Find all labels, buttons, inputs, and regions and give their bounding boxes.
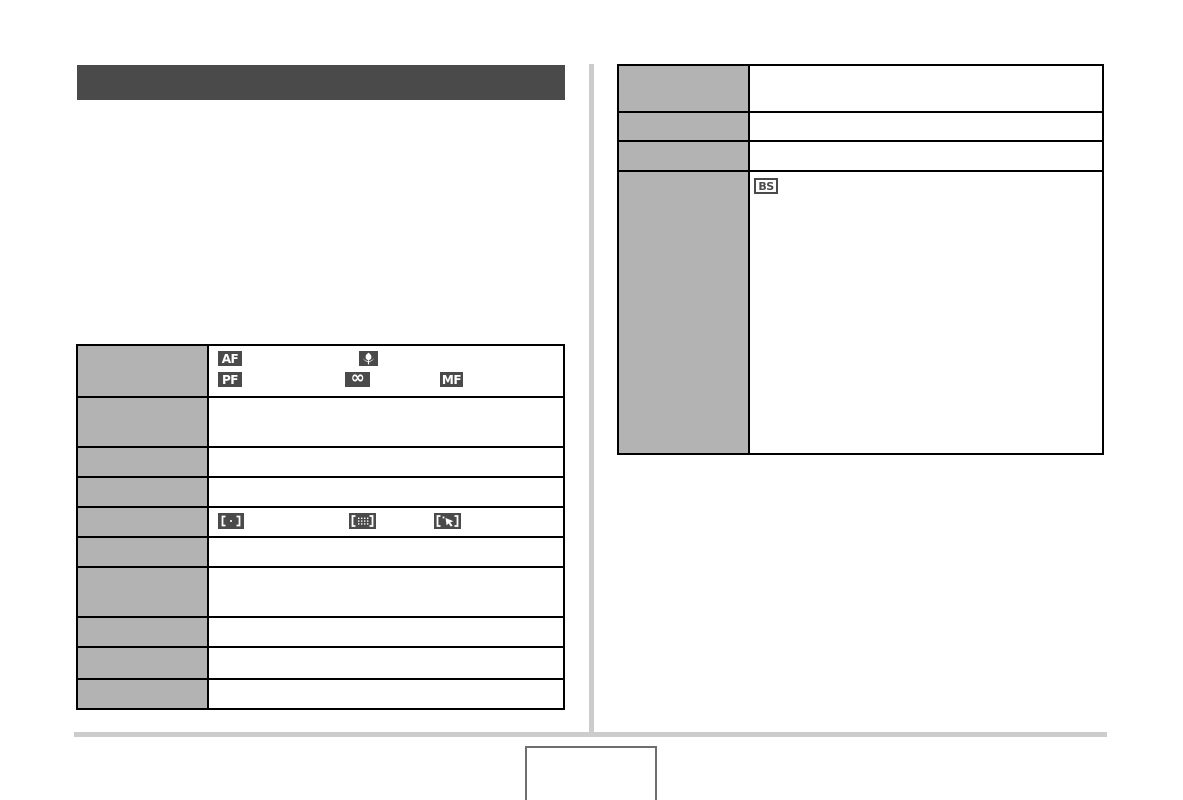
table-row: [619, 66, 1102, 113]
row-label-cell: [78, 618, 209, 646]
row-content-cell: [209, 618, 563, 646]
table-row: [78, 618, 563, 648]
row-label-cell: [78, 568, 209, 616]
table-row: [78, 478, 563, 508]
table-row: [78, 568, 563, 618]
row-label-cell: [619, 113, 750, 140]
row-label-cell: [78, 398, 209, 446]
row-label-cell: [78, 648, 209, 678]
row-label-cell: [619, 172, 750, 453]
row-label-cell: [78, 448, 209, 476]
manual-page: AF PF ∞ MF: [0, 0, 1183, 800]
row-content-cell: [750, 142, 1102, 170]
manual-focus-icon: MF: [440, 372, 463, 387]
footer-rule: [74, 732, 1107, 737]
row-content-cell: [209, 398, 563, 446]
right-spec-table: BS: [617, 64, 1104, 455]
table-row-focus-modes: AF PF ∞ MF: [78, 346, 563, 398]
autofocus-icon: AF: [218, 351, 242, 366]
row-label-cell: [78, 508, 209, 536]
row-label-cell: [78, 346, 209, 396]
row-content-cell: BS: [750, 172, 1102, 453]
page-number-box: [525, 746, 657, 800]
row-label-cell: [78, 538, 209, 566]
af-area-multi-icon: [349, 513, 376, 529]
row-content-cell: [209, 680, 563, 708]
table-row-best-shot: BS: [619, 172, 1102, 453]
row-content-cell: [750, 113, 1102, 140]
infinity-focus-icon: ∞: [345, 372, 370, 387]
af-area-spot-icon: [218, 513, 244, 529]
left-spec-table: AF PF ∞ MF: [76, 344, 565, 710]
row-content-cell: [209, 508, 563, 536]
row-label-cell: [619, 66, 750, 111]
row-label-cell: [78, 478, 209, 506]
pan-focus-icon: PF: [218, 372, 242, 387]
table-row: [78, 538, 563, 568]
table-row: [78, 398, 563, 448]
column-divider: [589, 64, 594, 734]
section-title-bar: [77, 65, 565, 100]
row-label-cell: [619, 142, 750, 170]
best-shot-icon: BS: [754, 178, 778, 194]
table-row: [619, 142, 1102, 172]
table-row: [78, 648, 563, 680]
table-row: [619, 113, 1102, 142]
row-content-cell: [209, 478, 563, 506]
macro-flower-icon: [359, 351, 378, 366]
table-row: [78, 448, 563, 478]
row-content-cell: AF PF ∞ MF: [209, 346, 563, 396]
row-label-cell: [78, 680, 209, 708]
row-content-cell: [209, 448, 563, 476]
af-area-tracking-icon: [434, 513, 461, 529]
table-row-af-area: [78, 508, 563, 538]
row-content-cell: [750, 66, 1102, 111]
row-content-cell: [209, 648, 563, 678]
row-content-cell: [209, 538, 563, 566]
table-row: [78, 680, 563, 708]
row-content-cell: [209, 568, 563, 616]
